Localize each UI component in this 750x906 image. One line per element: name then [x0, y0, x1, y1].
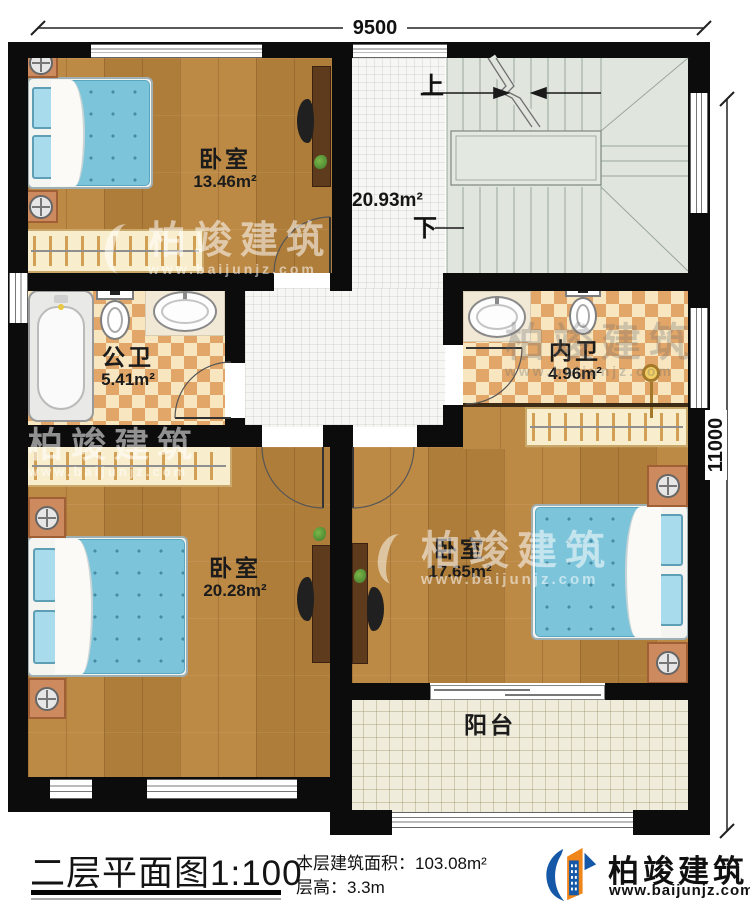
- wall: [330, 810, 392, 835]
- desk: [352, 543, 368, 664]
- title-block: 二层平面图1:100 本层建筑面积：103.08m² 层高：3.3m: [0, 843, 750, 906]
- room-label-bath-public: 公卫 5.41m²: [73, 344, 183, 390]
- plan-stats: 本层建筑面积：103.08m² 层高：3.3m: [296, 852, 487, 900]
- stair-up-label: 上: [420, 66, 444, 101]
- dimension-right: 11000: [705, 410, 727, 480]
- brand-logo-icon: [540, 845, 602, 903]
- room-label-bath-ensuite: 内卫 4.96m²: [515, 338, 635, 384]
- sink: [153, 291, 217, 332]
- title-underline: [31, 890, 281, 895]
- wardrobe-bedroom-tl: [26, 229, 204, 273]
- wall: [443, 273, 710, 291]
- wall: [330, 273, 352, 291]
- room-label-balcony: 阳台: [445, 712, 535, 738]
- desk: [312, 545, 331, 663]
- window: [9, 273, 28, 323]
- title-underline-thin: [31, 898, 281, 900]
- sink: [468, 296, 526, 338]
- room-name: 卧室: [160, 555, 310, 581]
- window: [353, 44, 447, 58]
- wall: [323, 425, 353, 447]
- shower-icon: [642, 364, 660, 382]
- room-area: 20.28m²: [160, 581, 310, 601]
- nightstand-icon: [28, 678, 66, 719]
- nightstand-icon: [647, 642, 688, 684]
- plan-title-text: 二层平面图: [30, 854, 210, 893]
- wall: [330, 447, 352, 683]
- sliding-door: [430, 685, 605, 700]
- balcony-railing: [392, 812, 633, 828]
- wall: [225, 291, 245, 363]
- stair-down-label: 下: [413, 208, 437, 243]
- stairwell-floor: [447, 58, 688, 273]
- wall: [352, 683, 430, 700]
- window: [690, 308, 708, 408]
- window: [91, 44, 262, 58]
- wall: [443, 291, 463, 345]
- room-area: 17.65m²: [385, 562, 535, 582]
- nightstand-icon: [28, 497, 66, 538]
- wardrobe-bedroom-br: [525, 407, 688, 447]
- nightstand-icon: [647, 465, 688, 507]
- partition-line: [463, 403, 688, 407]
- window: [690, 93, 708, 213]
- plan-title: 二层平面图1:100: [30, 845, 303, 896]
- room-name: 阳台: [445, 712, 535, 738]
- wardrobe-bedroom-bl: [26, 445, 232, 487]
- wall: [605, 683, 688, 700]
- chair: [297, 99, 314, 143]
- bed-bedroom-br: [531, 504, 689, 640]
- height-label: 层高：: [296, 878, 347, 897]
- bedroom-br-floor-patch: [462, 405, 526, 449]
- room-area: 5.41m²: [73, 370, 183, 390]
- bed-bedroom-tl: [27, 77, 153, 189]
- dimension-top: 9500: [343, 17, 407, 39]
- nightstand-icon: [24, 190, 58, 223]
- height-value: 3.3m: [347, 878, 385, 897]
- room-label-bedroom-tl: 卧室 13.46m²: [150, 146, 300, 192]
- toilet-bowl: [100, 300, 130, 340]
- area-label: 本层建筑面积：: [296, 854, 415, 873]
- room-area: 13.46m²: [150, 172, 300, 192]
- wall: [633, 810, 710, 835]
- hall-floor-mid: [245, 288, 445, 427]
- toilet-bowl: [569, 297, 597, 335]
- area-value: 103.08m²: [415, 854, 487, 873]
- wall: [8, 425, 262, 447]
- floorplan-sheet: 9500 11000 卧室 13.46m² 公卫 5.41m² 内卫 4.96m…: [0, 0, 750, 906]
- window: [50, 779, 92, 799]
- room-name: 公卫: [73, 344, 183, 370]
- brand-url: www.baijunjz.com: [609, 882, 750, 899]
- wall: [417, 425, 463, 447]
- shower-rail: [650, 382, 653, 418]
- room-name: 卧室: [150, 146, 300, 172]
- wall: [332, 58, 352, 273]
- plan-scale: 1:100: [210, 854, 303, 893]
- room-label-bedroom-bl: 卧室 20.28m²: [160, 555, 310, 601]
- room-label-bedroom-br: 卧室 17.65m²: [385, 536, 535, 582]
- room-name: 卧室: [385, 536, 535, 562]
- window: [147, 779, 297, 799]
- wall: [8, 273, 274, 291]
- room-name: 内卫: [515, 338, 635, 364]
- room-area: 4.96m²: [515, 364, 635, 384]
